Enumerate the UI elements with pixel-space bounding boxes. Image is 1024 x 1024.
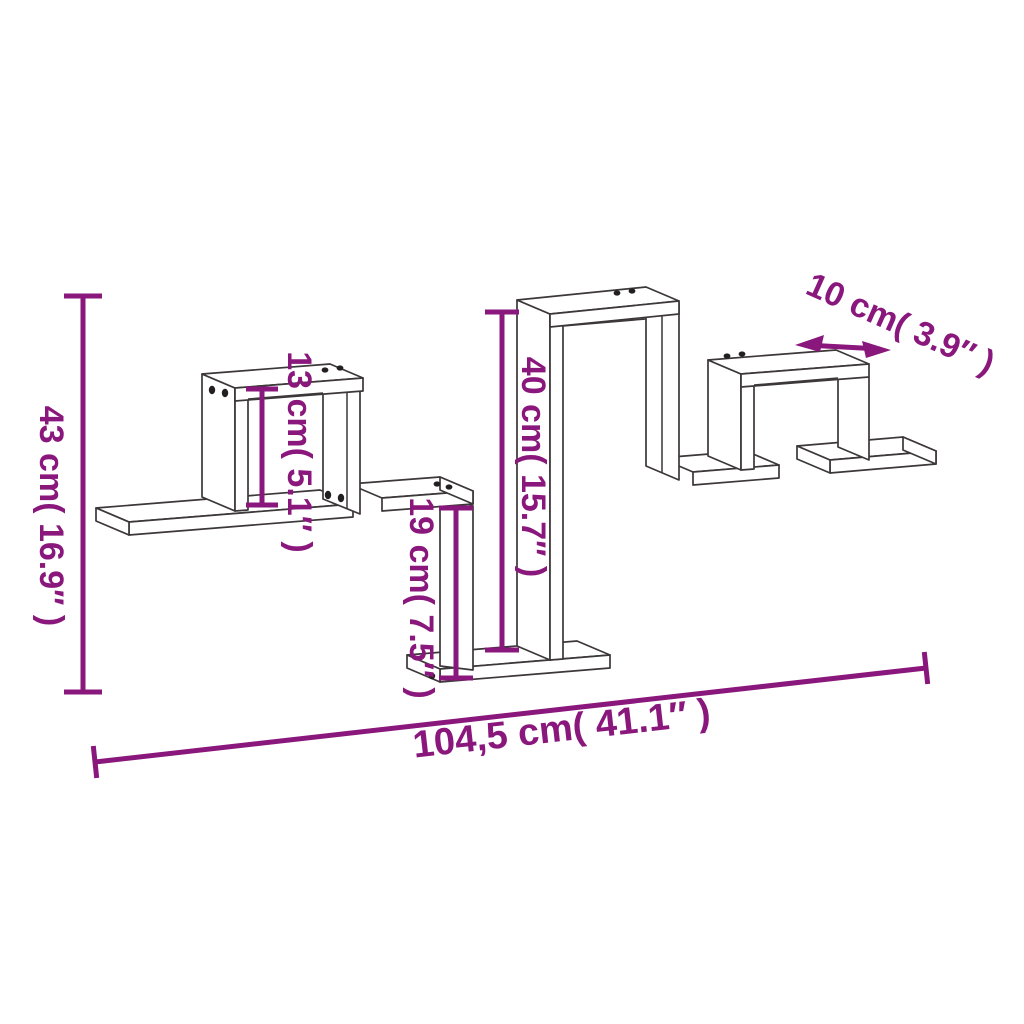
screw-hole-dot	[337, 365, 344, 370]
screw-hole-dot	[724, 353, 731, 358]
screw-hole-dot	[739, 351, 746, 356]
wall-shelf-dimension-diagram: 43 cm( 16.9″ ) 13 cm( 5.1″ ) 40 cm( 15.7…	[0, 0, 1024, 1024]
screw-hole-dot	[434, 481, 441, 486]
left-cube-left-panel-front-face	[235, 387, 248, 511]
screw-hole-dot	[325, 491, 331, 499]
dimension-drop-height-label: 19 cm( 7.5″ )	[402, 497, 440, 699]
diagram-canvas: 43 cm( 16.9″ ) 13 cm( 5.1″ ) 40 cm( 15.7…	[0, 0, 1024, 1024]
dimension-total-width-label: 104,5 cm( 41.1″ )	[411, 692, 713, 767]
dimension-column-height-label: 40 cm( 15.7″ )	[514, 357, 552, 577]
screw-hole-dot	[322, 367, 329, 372]
dimension-total-height: 43 cm( 16.9″ )	[32, 296, 102, 692]
screw-hole-dot	[209, 386, 215, 394]
screw-hole-dot	[446, 484, 453, 489]
screw-hole-dot	[614, 290, 621, 295]
dimension-left-cube-height-label: 13 cm( 5.1″ )	[280, 351, 318, 553]
right-cube-left-panel-side-face	[708, 360, 741, 470]
screw-hole-dot	[222, 389, 228, 397]
dimension-arrowhead-right	[862, 341, 891, 358]
screw-hole-dot	[629, 288, 636, 293]
dimension-end-cap	[93, 746, 96, 778]
dimension-end-cap	[924, 652, 927, 684]
dimension-arrowhead-left	[795, 335, 824, 352]
left-cube-left-panel-side-face	[202, 374, 235, 511]
dimension-total-height-label: 43 cm( 16.9″ )	[32, 406, 70, 626]
screw-hole-dot	[338, 494, 344, 502]
